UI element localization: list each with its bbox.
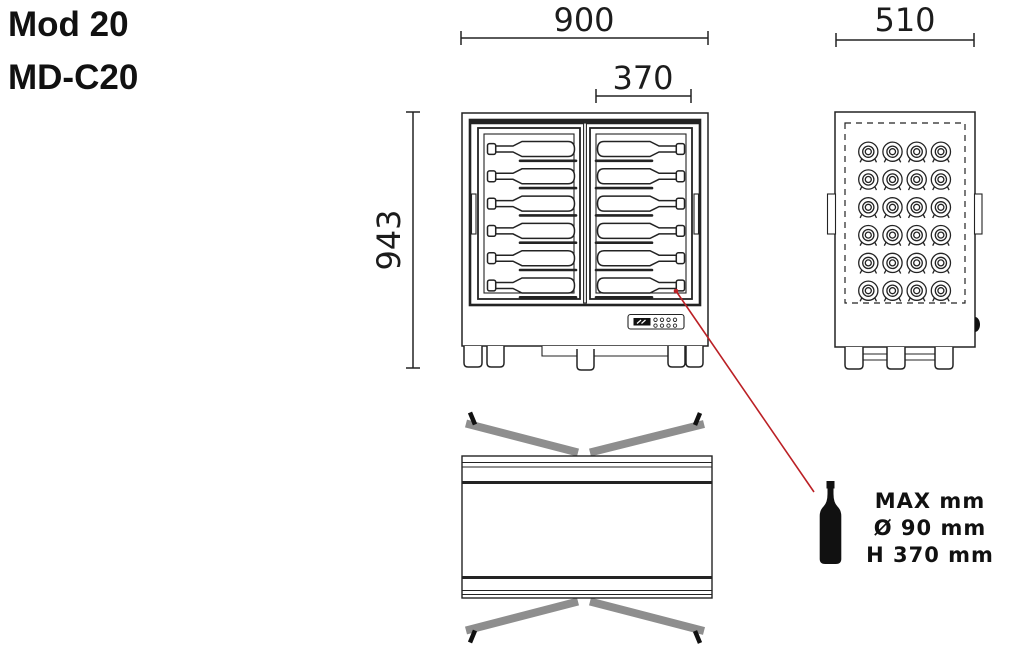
dimension-width-label: 900 — [553, 1, 614, 39]
front-feet — [464, 346, 703, 370]
side-knob — [975, 317, 980, 332]
spec-diameter-label: Ø 90 mm — [874, 516, 986, 540]
wine-cabinet-technical-drawing: Mod 20 MD-C20 900 370 943 510 — [0, 0, 1010, 650]
dimension-door-opening-label: 370 — [612, 59, 673, 97]
open-door-bottom-left — [466, 602, 578, 631]
display-screen — [634, 318, 651, 326]
wine-bottle-icon — [820, 481, 842, 564]
top-view — [462, 413, 712, 644]
side-right-handle — [975, 194, 983, 234]
leader-dot — [674, 289, 679, 294]
left-door-handle — [472, 194, 477, 234]
model-name: Mod 20 — [8, 5, 129, 44]
dimension-width: 900 — [461, 1, 708, 45]
side-left-handle — [828, 194, 836, 234]
dimension-depth: 510 — [836, 1, 974, 47]
open-door-top-left — [466, 424, 578, 453]
technical-drawing-canvas: Mod 20 MD-C20 900 370 943 510 — [0, 0, 1010, 650]
dimension-depth-label: 510 — [874, 1, 935, 39]
spec-height-label: H 370 mm — [866, 543, 994, 567]
side-view — [828, 112, 983, 369]
right-door-handle — [694, 194, 699, 234]
model-code: MD-C20 — [8, 58, 138, 97]
door-center-post — [584, 123, 587, 303]
open-door-bottom-right — [590, 602, 704, 632]
open-door-top-right — [590, 424, 704, 453]
spec-max-label: MAX mm — [875, 489, 985, 513]
dimension-height-label: 943 — [370, 209, 408, 270]
side-feet — [845, 347, 953, 369]
dimension-height: 943 — [370, 112, 420, 368]
control-panel — [628, 315, 684, 330]
side-body — [835, 112, 975, 347]
front-view — [462, 113, 708, 370]
dimension-door-opening: 370 — [596, 59, 691, 103]
title-block: Mod 20 MD-C20 — [8, 5, 138, 97]
